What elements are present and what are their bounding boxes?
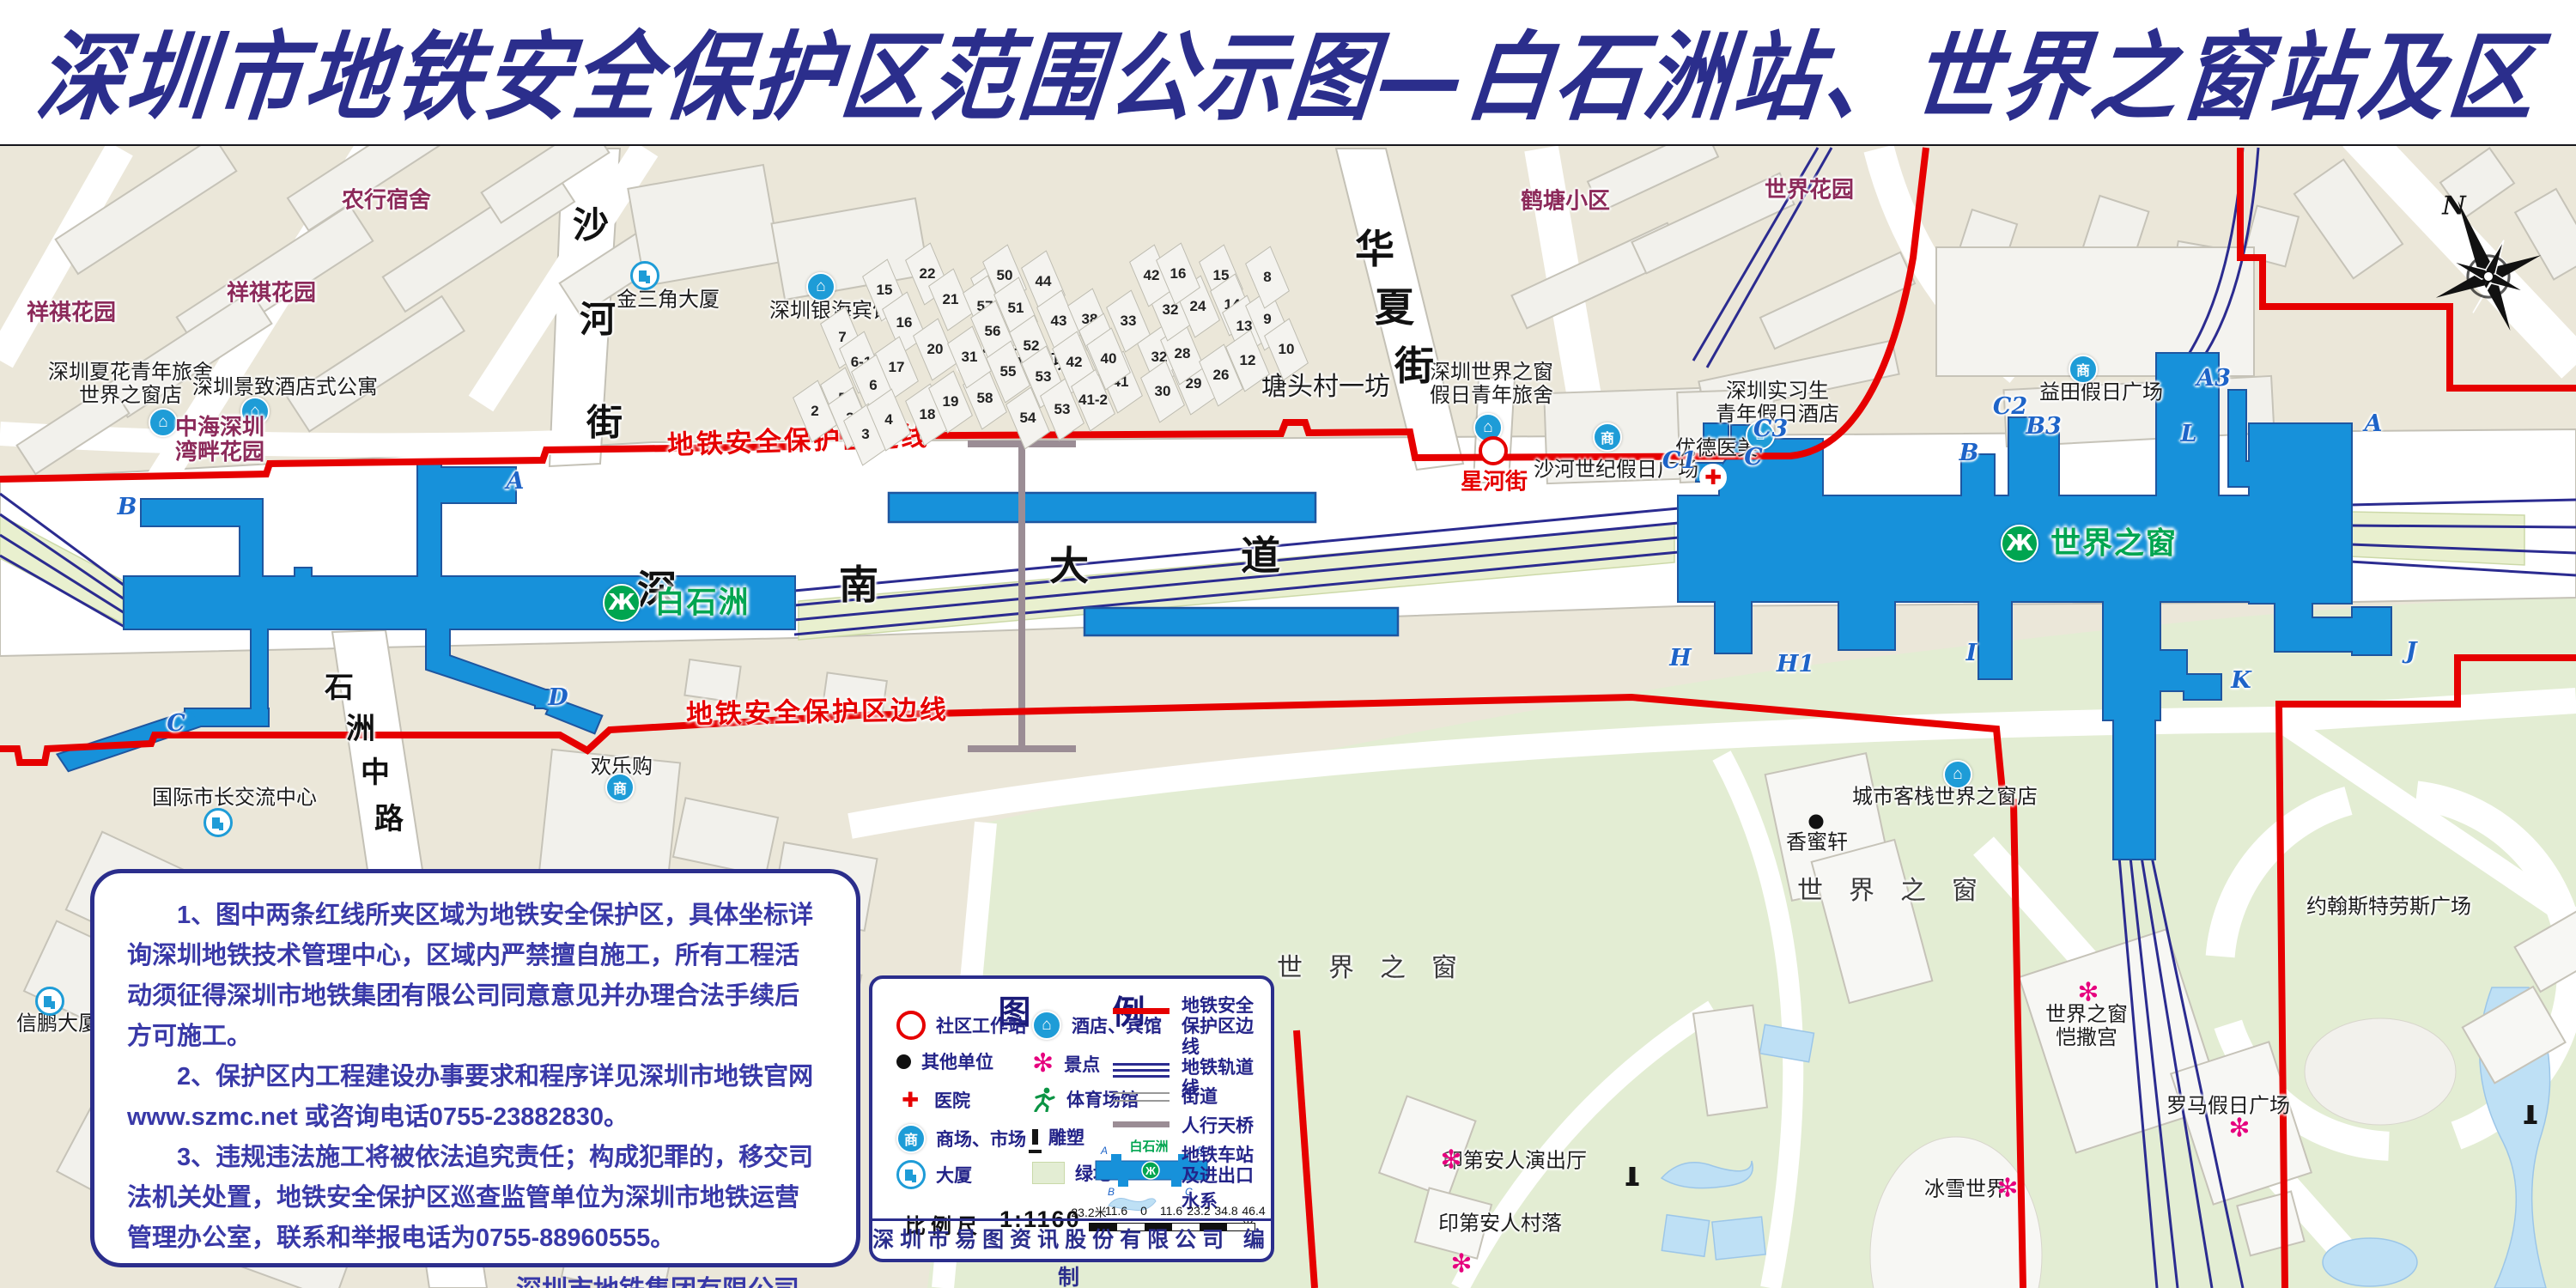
- scale-tick: 0: [1140, 1204, 1147, 1218]
- hotel-icon: ⌂: [1032, 1011, 1061, 1040]
- legend-label-bridge: 人行天桥: [1182, 1116, 1254, 1137]
- legend-item-其他单位: 其他单位: [896, 1048, 993, 1074]
- green-icon: [1032, 1162, 1065, 1184]
- svg-text:Ж: Ж: [1145, 1164, 1156, 1177]
- shang-icon: 商: [896, 1124, 926, 1153]
- scale-tick: 23.2: [1187, 1204, 1210, 1218]
- legend-linesample-street: [1113, 1092, 1170, 1108]
- dot-icon: [896, 1054, 911, 1069]
- map-area: 农行宿舍祥祺花园祥祺花园深圳夏花青年旅舍世界之窗店⌂深圳景致酒店式公寓⌂中海深圳…: [0, 146, 2576, 1288]
- flower-icon: ✻: [1032, 1048, 1054, 1078]
- poster: 深圳市地铁安全保护区范围公示图—白石洲站、世界之窗站及区间: [0, 0, 2576, 1288]
- scale-tick: 11.6: [1105, 1204, 1127, 1218]
- legend-label-street: 街道: [1182, 1087, 1218, 1108]
- legend-item-大厦: 大厦: [896, 1160, 972, 1189]
- signature-company: 深圳市地铁集团有限公司: [127, 1271, 799, 1288]
- daxia-icon: [896, 1160, 926, 1189]
- legend-item-商场、市场: 商商场、市场: [896, 1124, 1026, 1153]
- legend-item-酒店、宾馆: ⌂酒店、宾馆: [1032, 1011, 1162, 1040]
- legend-item-社区工作站: 社区工作站: [896, 1011, 1026, 1040]
- note-paragraph-1: 1、图中两条红线所夹区域为地铁安全保护区，具体坐标详询深圳地铁技术管理中心，区域…: [127, 896, 823, 1057]
- legend-linesample-red: [1113, 1008, 1170, 1014]
- legend-attribution: 深圳市易图资讯股份有限公司 编制: [872, 1218, 1271, 1259]
- legend-item-景点: ✻景点: [1032, 1048, 1100, 1078]
- scale-tick: 11.6: [1160, 1204, 1182, 1218]
- cross-icon: ✚: [896, 1086, 924, 1114]
- legend-label-red: 地铁安全保护区边线: [1182, 996, 1271, 1058]
- page-title: 深圳市地铁安全保护区范围公示图—白石洲站、世界之窗站及区间: [0, 0, 2576, 154]
- ring-icon: [896, 1011, 926, 1040]
- runner-icon: [1032, 1086, 1056, 1112]
- svg-text:白石洲: 白石洲: [1129, 1139, 1168, 1154]
- notes-box: 1、图中两条红线所夹区域为地铁安全保护区，具体坐标详询深圳地铁技术管理中心，区域…: [90, 869, 860, 1267]
- legend-linesample-bridge: [1113, 1121, 1170, 1127]
- legend-item-雕塑: 雕塑: [1032, 1124, 1084, 1150]
- statue-icon: [1032, 1129, 1038, 1145]
- legend-label-station: 地铁车站及进出口: [1182, 1145, 1254, 1187]
- svg-text:A: A: [1100, 1145, 1108, 1157]
- note-paragraph-2: 2、保护区内工程建设办事要求和程序详见深圳市地铁官网 www.szmc.net …: [127, 1057, 823, 1138]
- legend-box: 图例 社区工作站其他单位✚医院商商场、市场大厦⌂酒店、宾馆✻景点体育场馆雕塑绿地…: [869, 975, 1274, 1262]
- scale-tick: 34.8: [1214, 1204, 1237, 1218]
- legend-linesample-rail: [1113, 1063, 1170, 1081]
- legend-item-医院: ✚医院: [896, 1086, 970, 1114]
- note-paragraph-3: 3、违规违法施工将被依法追究责任；构成犯罪的，移交司法机关处置，地铁安全保护区巡…: [127, 1138, 823, 1259]
- strauss-center: [2305, 1018, 2456, 1125]
